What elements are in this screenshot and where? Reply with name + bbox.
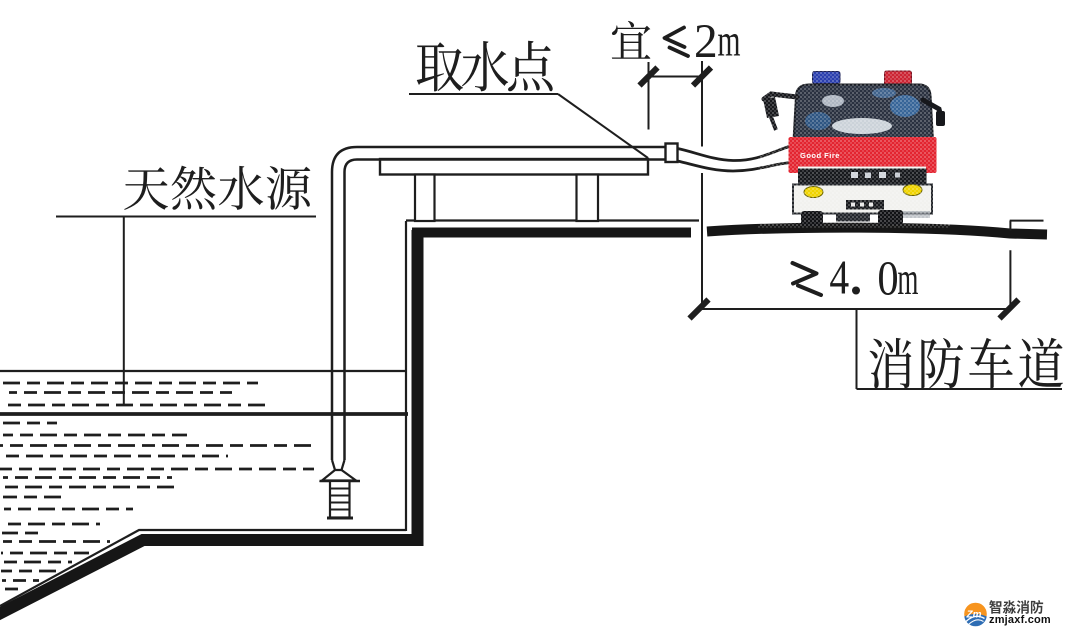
svg-text:Zm: Zm — [966, 610, 982, 621]
svg-text:zmjaxf.com: zmjaxf.com — [989, 614, 1051, 626]
